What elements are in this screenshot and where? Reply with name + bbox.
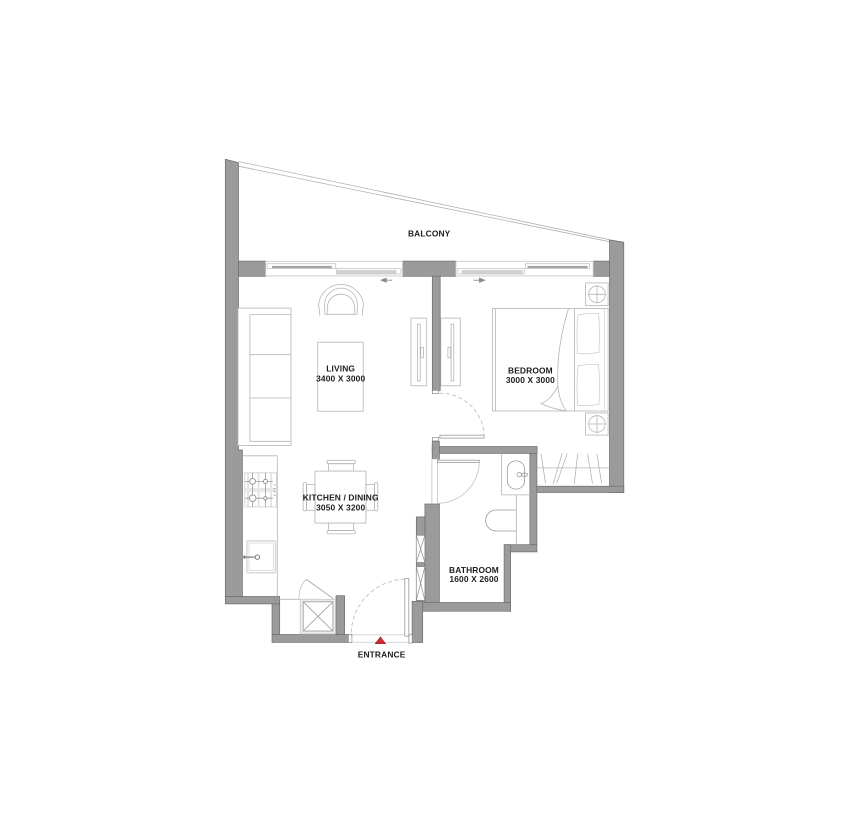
svg-text:3000 X 3000: 3000 X 3000 xyxy=(506,375,555,385)
svg-text:3050 X 3200: 3050 X 3200 xyxy=(316,503,365,513)
svg-text:BEDROOM: BEDROOM xyxy=(508,365,553,375)
svg-text:LIVING: LIVING xyxy=(326,363,355,373)
svg-text:BALCONY: BALCONY xyxy=(408,229,451,239)
svg-text:ENTRANCE: ENTRANCE xyxy=(358,649,406,659)
svg-text:1600 X 2600: 1600 X 2600 xyxy=(449,574,498,584)
svg-text:3400 X 3000: 3400 X 3000 xyxy=(316,374,365,384)
svg-text:KITCHEN / DINING: KITCHEN / DINING xyxy=(303,492,379,502)
